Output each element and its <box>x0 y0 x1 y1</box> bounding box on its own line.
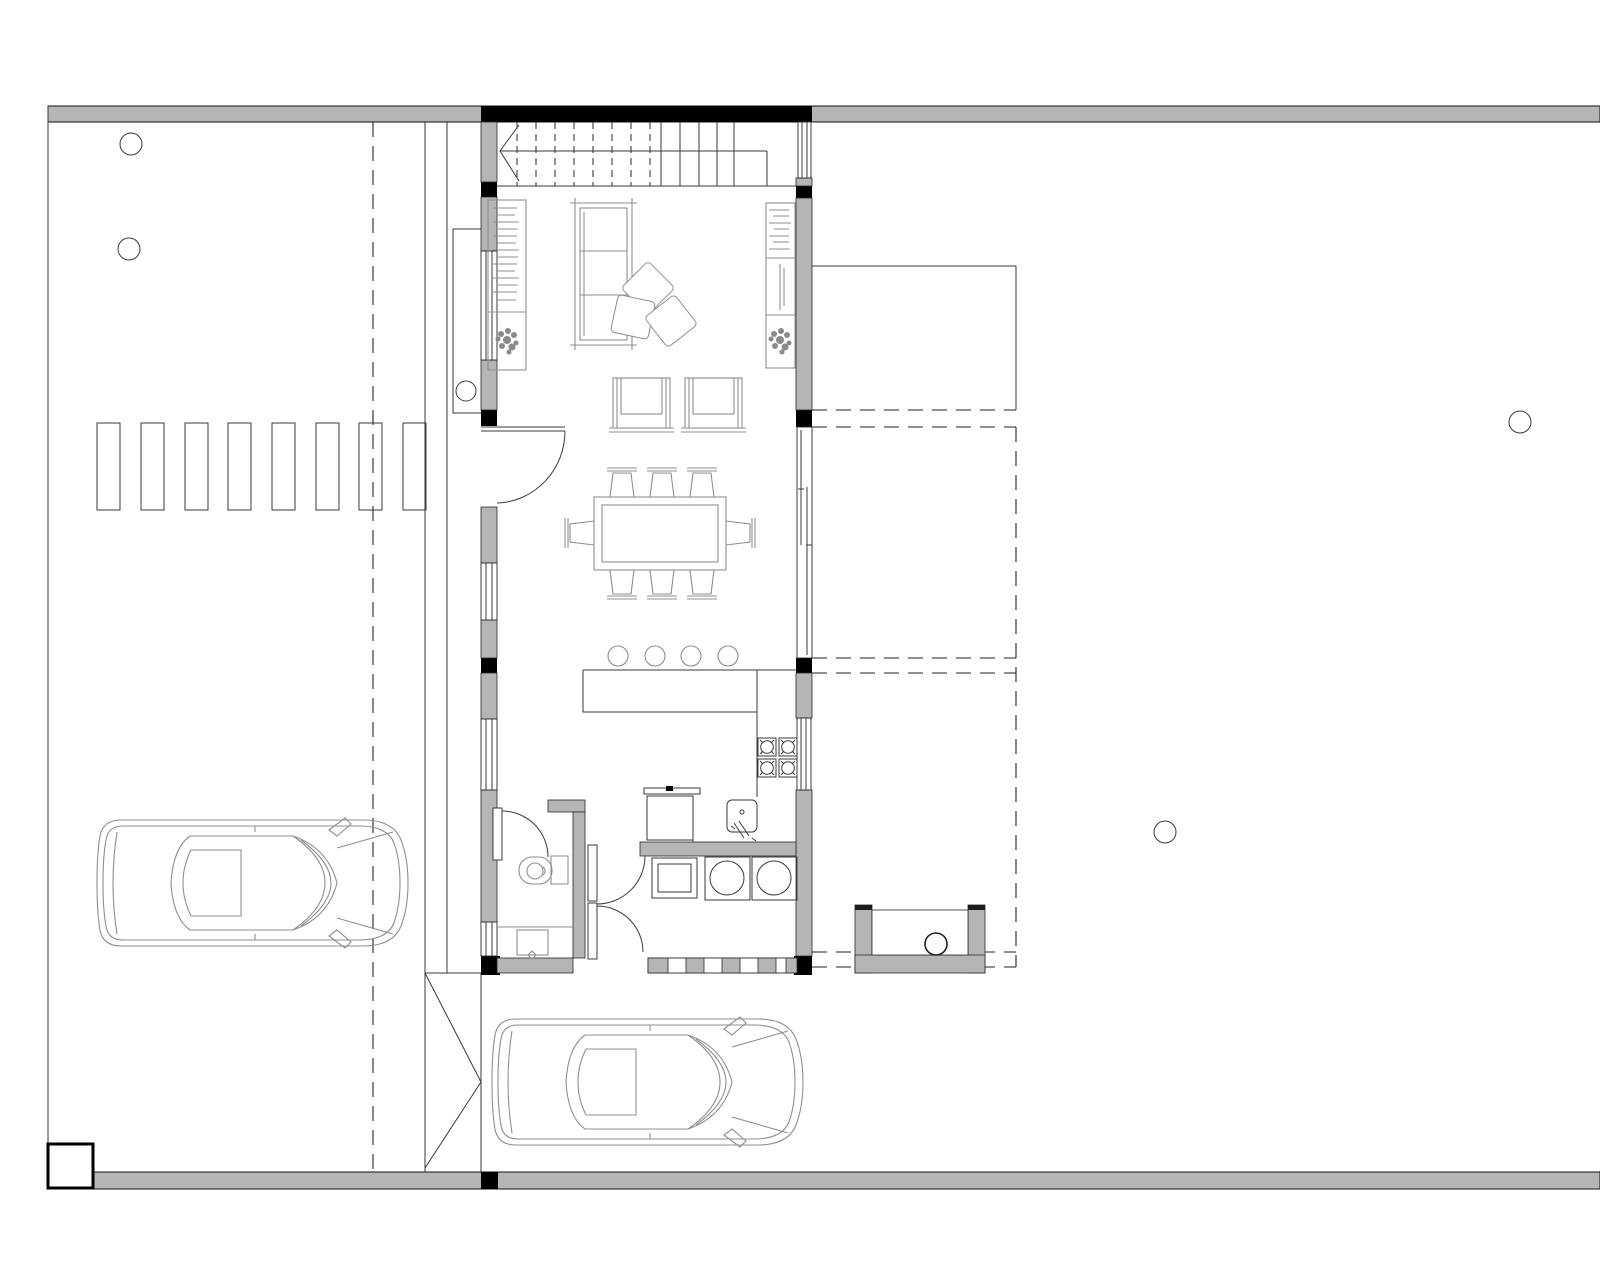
gate-leaves <box>425 973 481 1168</box>
cooktop <box>758 738 797 777</box>
car-parked-left <box>97 818 408 948</box>
floor-plan-canvas <box>0 0 1600 1280</box>
paver <box>228 423 251 510</box>
stair-center-line <box>500 151 767 186</box>
bar-stools <box>608 646 738 666</box>
paver <box>272 423 295 510</box>
bar-stool <box>718 646 738 666</box>
carport-gate <box>425 973 498 1189</box>
bar-stool <box>645 646 665 666</box>
plant-pot <box>769 328 792 355</box>
terrace-solid-edge <box>812 266 1016 410</box>
tree-circle <box>1154 821 1176 843</box>
door-leaf-open <box>481 427 565 431</box>
toilet <box>519 856 568 884</box>
door-leaf <box>588 845 597 901</box>
bookshelf-right <box>766 203 795 368</box>
gate-frame <box>425 973 497 1172</box>
site-boundary <box>48 106 1600 1189</box>
wall-left <box>481 673 497 719</box>
column <box>796 658 812 673</box>
stair-risers-dashed <box>517 122 650 186</box>
wall-right <box>796 673 812 718</box>
top-wall-black <box>481 106 812 122</box>
stair-risers-solid <box>661 122 734 186</box>
entry-door <box>481 427 565 503</box>
outdoor-planter-basin <box>855 905 985 973</box>
lounge-chair <box>681 378 746 432</box>
door-swing-arc <box>502 811 548 857</box>
column <box>481 410 497 426</box>
window-left <box>481 719 497 790</box>
tree-circle <box>120 133 142 155</box>
living-area <box>488 198 795 432</box>
bar-stool <box>681 646 701 666</box>
door-swing-arc <box>597 856 645 904</box>
louvered-wall-bottom <box>648 958 797 973</box>
stair-direction-arrow <box>500 125 519 181</box>
wall-left <box>481 197 497 251</box>
wall-left <box>481 507 497 563</box>
building-shell <box>481 106 812 975</box>
sliding-glass-door <box>797 427 812 658</box>
gate-post-block <box>481 1172 498 1189</box>
tree-circle <box>1509 411 1531 433</box>
dining-chair <box>687 468 717 497</box>
bar-stool <box>608 646 628 666</box>
dining-chair <box>607 570 637 599</box>
lounge-chair <box>609 378 674 432</box>
dining-chair <box>687 570 717 599</box>
wall-left <box>481 122 497 182</box>
column <box>796 410 812 427</box>
staircase <box>497 122 796 186</box>
double-swing-doors <box>588 845 645 959</box>
dining-chair <box>647 468 677 497</box>
wall-right <box>796 198 812 410</box>
plant-pot <box>496 328 519 355</box>
cabinet-door-line <box>780 264 784 310</box>
wall-left <box>481 620 497 658</box>
bathroom-wall-bottom <box>497 958 573 973</box>
overhang-dash-middle <box>812 658 1016 673</box>
wall-left <box>481 360 497 410</box>
column <box>796 186 812 198</box>
window-left <box>481 922 497 956</box>
faucet <box>731 821 756 841</box>
countertop-appliance <box>644 786 700 842</box>
column <box>481 658 497 673</box>
laundry-utility <box>648 857 797 973</box>
dining-chair <box>607 468 637 497</box>
kitchen-sink <box>727 800 757 841</box>
driveway-edge-lines <box>425 122 447 973</box>
paver <box>359 423 382 510</box>
dining-table-inner <box>602 505 718 562</box>
floor-cushions <box>610 261 697 348</box>
laundry-wall-top <box>640 842 796 856</box>
window-right <box>797 718 811 790</box>
washer-unit <box>705 857 750 900</box>
counter-L <box>583 670 796 797</box>
window-left <box>481 251 497 360</box>
wall-right <box>796 790 812 956</box>
site-trees <box>118 133 1531 843</box>
entry-porch <box>453 229 483 413</box>
floor-plan-page <box>0 0 1600 1280</box>
laundry-cabinet <box>652 858 697 898</box>
corner-marker-box <box>48 1144 93 1188</box>
bathroom <box>493 808 573 959</box>
car-carport <box>492 1017 803 1147</box>
column <box>481 182 497 197</box>
parking-paver-strip <box>97 423 426 510</box>
lounge-chairs <box>609 378 746 432</box>
site-wall-top <box>48 106 1600 122</box>
bathroom-door <box>493 808 548 860</box>
bathroom-wall-right <box>573 812 585 958</box>
door-leaf <box>588 903 597 959</box>
kitchen <box>583 646 797 842</box>
dining-area <box>565 468 755 599</box>
door-swing-arc <box>497 431 565 503</box>
porch-circle <box>456 381 476 401</box>
site-wall-bottom <box>48 1172 1600 1189</box>
window-left <box>481 563 497 620</box>
paver <box>97 423 120 510</box>
dining-chair <box>647 570 677 599</box>
paver <box>403 423 426 510</box>
bathroom-wall-top <box>548 800 585 812</box>
wall-right <box>796 178 812 186</box>
tree-circle <box>118 238 140 260</box>
window-right <box>798 122 811 178</box>
bathroom-sink <box>517 930 548 959</box>
washer-unit <box>752 857 797 900</box>
paver <box>316 423 339 510</box>
dining-table <box>594 497 726 570</box>
overhang-dash-upper <box>812 410 1016 427</box>
paver <box>141 423 164 510</box>
paver <box>185 423 208 510</box>
terrace-outline <box>812 266 1016 967</box>
dining-chair <box>726 518 755 548</box>
dining-chair <box>565 518 594 548</box>
door-swing-arc <box>597 906 643 952</box>
